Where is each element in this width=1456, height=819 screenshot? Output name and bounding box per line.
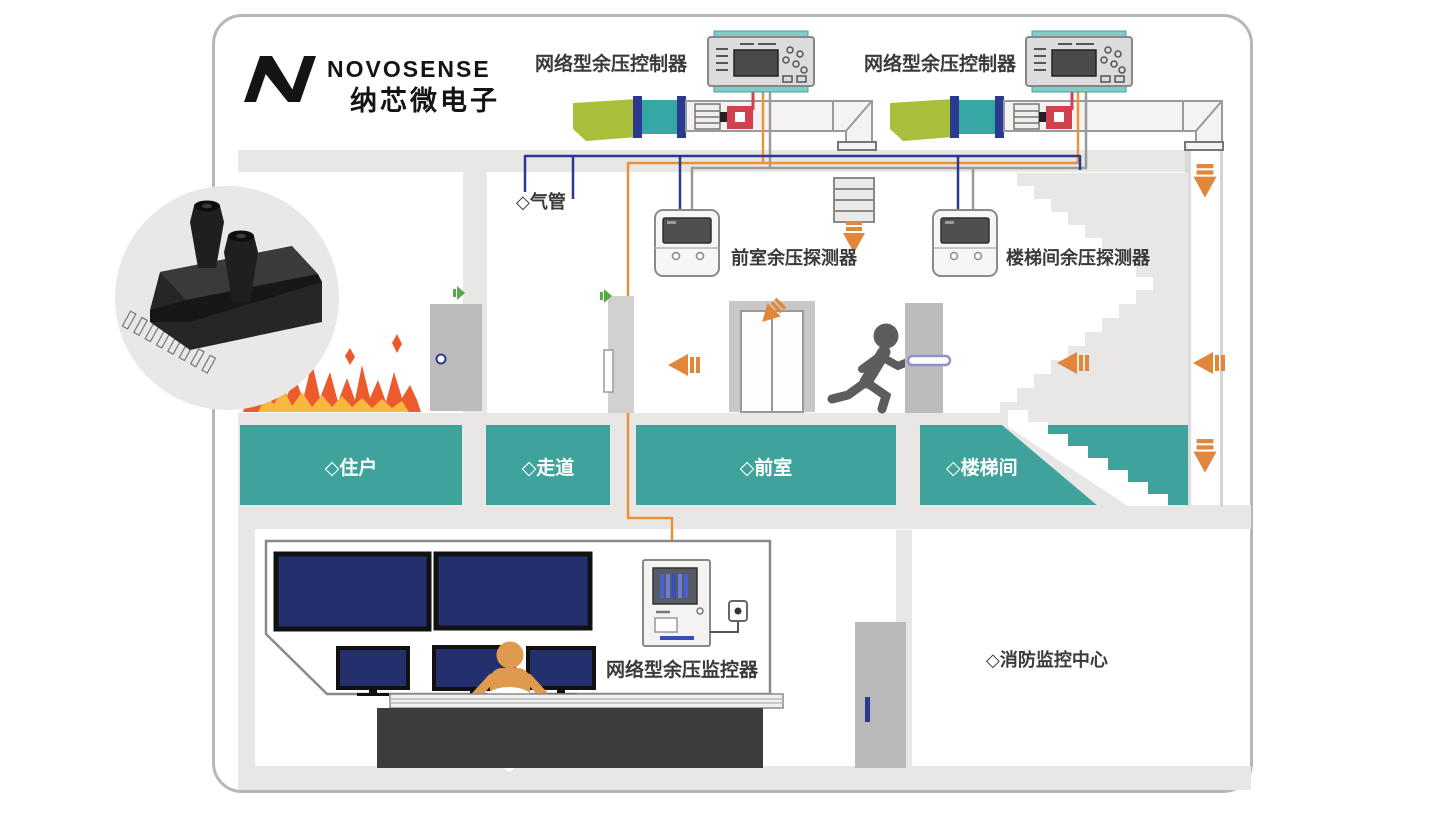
pressure-monitor-device — [643, 560, 710, 646]
controller-screen — [734, 50, 778, 76]
power-line — [628, 88, 1078, 562]
room-label-frontroom: ◇前室 — [636, 453, 896, 480]
panic-bar-icon — [908, 356, 950, 365]
controller-left-device — [708, 31, 814, 92]
front-detector-label: 前室余压探测器 — [731, 244, 857, 270]
novosense-logo-icon — [244, 56, 316, 102]
fan-shaft — [720, 112, 727, 122]
running-person-icon — [832, 324, 910, 410]
alarm-sounder-icon — [453, 286, 465, 300]
pressure-sensor-photo — [115, 186, 339, 410]
air-tube-line — [525, 156, 1080, 192]
control-desk — [377, 694, 783, 768]
detector-stairwell-device — [933, 210, 997, 276]
controller-right-device — [1026, 31, 1132, 92]
detector-front-device — [655, 210, 719, 276]
air-pipe-label: ◇气管 — [516, 188, 566, 214]
airflow-down-arrow-icon — [1193, 164, 1216, 198]
monitor-label: 网络型余压监控器 — [606, 655, 758, 682]
duct-left — [573, 96, 876, 150]
supply-grille-icon — [834, 178, 874, 222]
room-label-corridor: ◇走道 — [486, 453, 610, 480]
brand-name-cn: 纳芯微电子 — [350, 79, 500, 118]
controller-right-label: 网络型余压控制器 — [864, 49, 1016, 76]
wall-screen — [436, 554, 590, 628]
airflow-left-arrow-icon — [668, 354, 700, 376]
corridor-wall-door — [604, 296, 634, 413]
room-label-home: ◇住户 — [240, 453, 462, 480]
stairwell-detector-label: 楼梯间余压探测器 — [1006, 244, 1150, 270]
fan-motor-icon — [1046, 106, 1072, 129]
airflow-left-arrow-icon — [1193, 352, 1225, 374]
stairwell-door — [905, 303, 950, 413]
controller-left-label: 网络型余压控制器 — [535, 49, 687, 76]
room-label-stairwell: ◇楼梯间 — [946, 453, 1018, 480]
fan-louver-icon — [695, 104, 720, 129]
desk-monitor — [338, 648, 408, 696]
wall-screen — [276, 554, 429, 629]
diagram-artwork — [0, 0, 1456, 819]
fan-motor-icon — [727, 106, 753, 129]
fire-center-label: ◇消防监控中心 — [986, 646, 1108, 672]
door-handle-icon — [865, 697, 870, 722]
door-knob-icon — [437, 355, 446, 364]
operator-head — [497, 642, 524, 669]
duct-right — [890, 96, 1223, 150]
controller-screen — [1052, 50, 1096, 76]
airflow-down-arrow-icon — [1193, 439, 1216, 473]
control-room-door — [855, 622, 906, 768]
stairs — [1000, 173, 1188, 506]
fan-shaft — [1039, 112, 1046, 122]
fan-louver-icon — [1014, 104, 1039, 129]
diagram-canvas: NOVOSENSE 纳芯微电子 网络型余压控制器 网络型余压控制器 ◇气管 前室… — [0, 0, 1456, 819]
power-outlet-icon — [729, 601, 747, 621]
home-door — [430, 304, 482, 411]
